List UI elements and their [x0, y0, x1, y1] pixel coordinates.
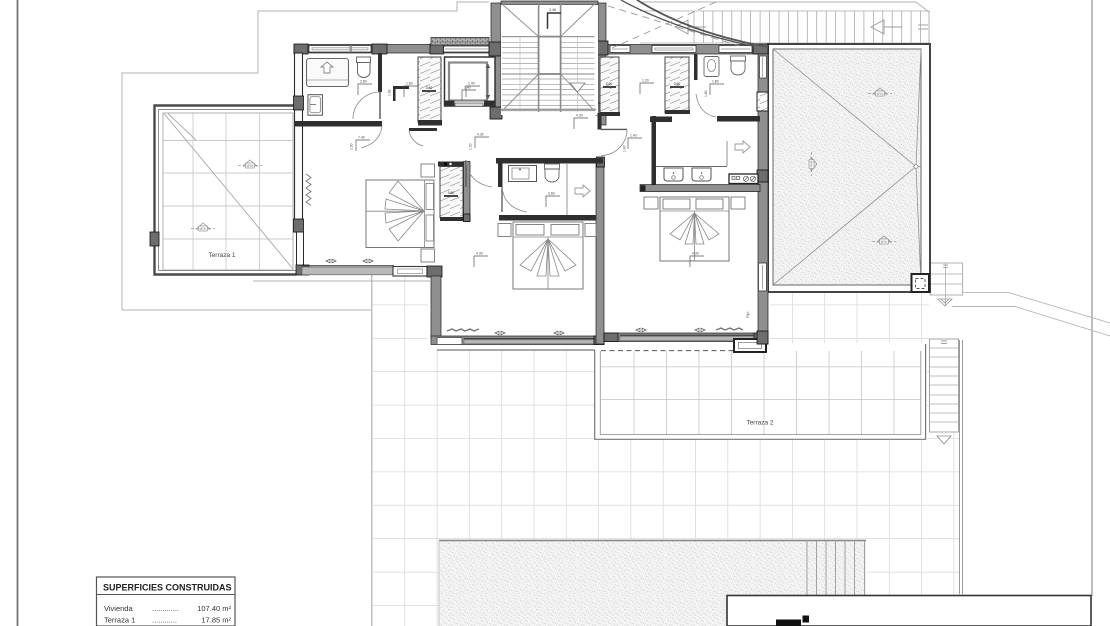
svg-text:3.90: 3.90 — [350, 143, 354, 150]
svg-text:............: ............ — [152, 616, 177, 625]
svg-text:0.60: 0.60 — [606, 82, 613, 86]
svg-text:4.30: 4.30 — [477, 133, 484, 137]
svg-text:SUPERFICIES CONSTRUIDAS: SUPERFICIES CONSTRUIDAS — [103, 583, 232, 593]
svg-text:4.30: 4.30 — [692, 252, 699, 256]
svg-text:4.30: 4.30 — [576, 114, 583, 118]
svg-text:1.88: 1.88 — [388, 89, 392, 96]
svg-text:7.40: 7.40 — [358, 136, 365, 140]
svg-text:1.80: 1.80 — [406, 82, 413, 86]
svg-text:107.40 m²: 107.40 m² — [197, 604, 231, 613]
svg-text:1.40: 1.40 — [630, 134, 637, 138]
svg-text:1.40: 1.40 — [623, 145, 627, 152]
svg-text:0.60: 0.60 — [674, 82, 681, 86]
svg-text:0.80: 0.80 — [426, 86, 433, 90]
svg-text:2.60: 2.60 — [360, 80, 367, 84]
svg-text:2.46: 2.46 — [549, 8, 556, 12]
svg-text:Terraza 2: Terraza 2 — [746, 420, 773, 427]
svg-text:1.60: 1.60 — [704, 90, 708, 97]
svg-text:Terraza 1: Terraza 1 — [208, 252, 235, 259]
svg-text:2.60: 2.60 — [548, 192, 555, 196]
svg-text:1.80: 1.80 — [712, 80, 719, 84]
svg-text:0.60: 0.60 — [448, 191, 455, 195]
svg-text:1.40: 1.40 — [468, 82, 475, 86]
svg-text:Terraza 1: Terraza 1 — [104, 616, 135, 625]
svg-text:.............: ............. — [152, 604, 179, 613]
svg-text:Fijo: Fijo — [745, 311, 750, 318]
svg-text:1.30: 1.30 — [469, 143, 473, 150]
svg-text:1.20: 1.20 — [642, 79, 649, 83]
svg-text:4.30: 4.30 — [476, 252, 483, 256]
svg-text:17.85 m²: 17.85 m² — [201, 616, 231, 625]
svg-text:Vivienda: Vivienda — [104, 604, 133, 613]
